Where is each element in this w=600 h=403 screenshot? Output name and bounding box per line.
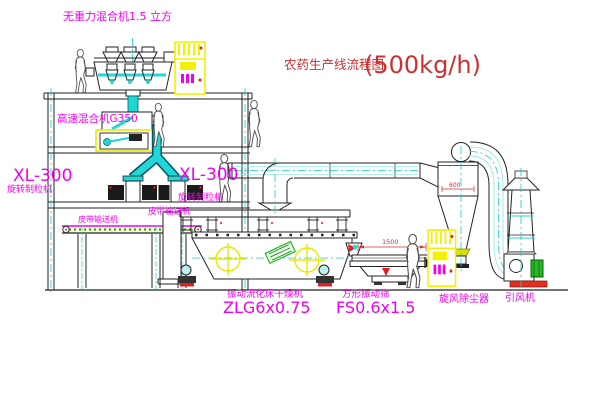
fluid-bed-dryer xyxy=(178,210,362,287)
control-cabinet-lower xyxy=(428,230,456,286)
screen-length-dimension: 1500 xyxy=(382,238,399,246)
granulator-left xyxy=(108,176,157,202)
label-granulator-right-model: XL-300 xyxy=(179,165,238,185)
label-granulator-right-name: 旋转制粒机 xyxy=(178,191,223,203)
worker-figure-roof xyxy=(75,49,86,92)
cyclone-dimension: 600 xyxy=(449,182,461,189)
diagram-svg: 600 1 xyxy=(0,0,600,403)
induced-draft-fan xyxy=(504,254,547,287)
exhaust-duct xyxy=(228,158,437,213)
worker-figure-ground xyxy=(406,234,420,287)
control-cabinet-upper xyxy=(175,42,205,94)
label-belt-conveyor-upper: 皮带输送机 xyxy=(78,214,118,224)
label-screen-model: FS0.6x1.5 xyxy=(336,298,415,317)
process-flow-diagram: 600 1 xyxy=(0,0,600,403)
label-granulator-left-name: 旋转制粒机 xyxy=(7,183,52,195)
label-high-speed-mixer: 高速混合机G350 xyxy=(57,112,138,125)
label-granulator-left-model: XL-300 xyxy=(13,166,72,186)
label-dryer-model: ZLG6x0.75 xyxy=(223,298,311,317)
worker-figure-floor2-right xyxy=(249,100,261,146)
label-fan: 引风机 xyxy=(505,291,535,304)
page-title-capacity: (500kg/h) xyxy=(364,51,481,79)
label-cyclone: 旋风除尘器 xyxy=(439,292,489,305)
gravity-free-mixer xyxy=(86,47,176,113)
label-belt-conveyor: 皮带输送机 xyxy=(148,206,191,217)
label-gravity-mixer: 无重力混合机1.5 立方 xyxy=(63,9,172,23)
